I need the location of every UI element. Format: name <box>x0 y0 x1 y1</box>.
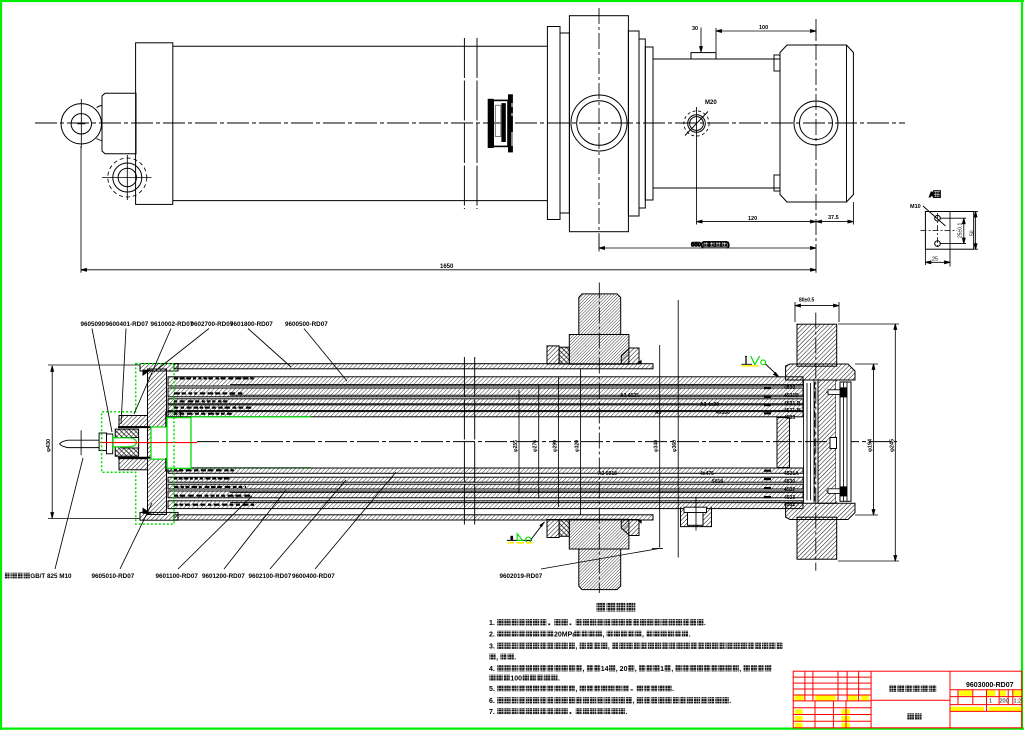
svg-text:,: , <box>583 666 585 673</box>
svg-text:4x530: 4x530 <box>716 410 730 416</box>
svg-text:φ194: φ194 <box>868 438 874 452</box>
svg-text:φ255: φ255 <box>513 440 519 452</box>
svg-text:A3: A3 <box>655 410 662 416</box>
svg-text:1650: 1650 <box>440 264 454 270</box>
svg-text:9601200-RD07: 9601200-RD07 <box>202 573 245 580</box>
svg-text:9610002-RD07: 9610002-RD07 <box>151 321 194 328</box>
svg-text:37.5: 37.5 <box>828 215 839 221</box>
svg-text:4530: 4530 <box>784 479 795 485</box>
svg-text:25: 25 <box>932 257 938 263</box>
svg-text:φ320: φ320 <box>575 440 581 452</box>
svg-text:100: 100 <box>759 25 768 31</box>
svg-text:4533: 4533 <box>784 495 795 501</box>
svg-text:.: . <box>704 620 706 627</box>
svg-text:20MPa: 20MPa <box>554 632 576 639</box>
svg-text:50: 50 <box>970 230 976 236</box>
svg-text:5018: 5018 <box>712 479 723 485</box>
svg-text:.: . <box>558 676 560 683</box>
svg-text:1:2: 1:2 <box>1014 699 1022 705</box>
svg-text:φ245: φ245 <box>889 439 895 452</box>
svg-text:25±0.1: 25±0.1 <box>958 223 964 238</box>
svg-text:, 20: , 20 <box>616 666 628 673</box>
svg-text:9600401-RD07: 9600401-RD07 <box>106 321 149 328</box>
svg-text:4x475: 4x475 <box>700 471 714 477</box>
svg-text:120: 120 <box>748 216 757 222</box>
svg-text:,: , <box>575 644 577 651</box>
svg-text:200: 200 <box>1000 699 1009 705</box>
svg-text:,: , <box>635 666 637 673</box>
svg-text:.: . <box>514 655 516 662</box>
svg-text:4531-B: 4531-B <box>784 408 801 414</box>
svg-text:3.: 3. <box>489 644 495 651</box>
svg-text:4531-D: 4531-D <box>784 401 801 407</box>
svg-text:9602019-RD07: 9602019-RD07 <box>500 573 543 580</box>
svg-text:100: 100 <box>510 676 522 683</box>
svg-text:GB/T 825 M10: GB/T 825 M10 <box>30 573 72 580</box>
svg-text:9600400-RD07: 9600400-RD07 <box>292 573 335 580</box>
svg-text:14: 14 <box>601 666 609 673</box>
svg-text:4531B: 4531B <box>784 393 799 399</box>
svg-text:,: , <box>602 632 604 639</box>
svg-text:7.: 7. <box>489 709 495 716</box>
svg-text:4532: 4532 <box>784 487 795 493</box>
svg-text:.: . <box>689 632 691 639</box>
svg-text:80±0.5: 80±0.5 <box>799 298 814 304</box>
svg-text:650(: 650( <box>691 243 703 249</box>
svg-text:,: , <box>633 698 635 705</box>
svg-text:,: , <box>671 666 673 673</box>
svg-text:9605090: 9605090 <box>81 321 106 328</box>
svg-text:1: 1 <box>660 666 664 673</box>
svg-text:4533: 4533 <box>784 415 795 421</box>
svg-text:A3 4535: A3 4535 <box>620 393 639 399</box>
svg-text:,: , <box>575 686 577 693</box>
svg-text:M20: M20 <box>705 100 717 106</box>
svg-text:9602700-RD07: 9602700-RD07 <box>191 321 234 328</box>
svg-text:M10: M10 <box>910 204 921 210</box>
svg-text:4530: 4530 <box>784 385 795 391</box>
svg-text:2.: 2. <box>489 632 495 639</box>
svg-text:5.: 5. <box>489 686 495 693</box>
svg-text:4531: 4531 <box>784 502 795 508</box>
svg-text:φ430: φ430 <box>46 439 52 452</box>
svg-text:9601100-RD07: 9601100-RD07 <box>156 573 199 580</box>
svg-text:φ360: φ360 <box>672 440 678 452</box>
svg-text:9603000-RD07: 9603000-RD07 <box>966 682 1014 689</box>
svg-text:1.: 1. <box>489 620 495 627</box>
svg-text:9602100-RD07: 9602100-RD07 <box>249 573 292 580</box>
svg-text:.: . <box>625 709 627 716</box>
svg-text:,: , <box>608 644 610 651</box>
svg-text:,: , <box>739 666 741 673</box>
svg-text:A3 5018: A3 5018 <box>598 471 617 477</box>
svg-text:9601800-RD07: 9601800-RD07 <box>230 321 273 328</box>
svg-text:4.: 4. <box>489 666 495 673</box>
svg-text:,: , <box>496 655 498 662</box>
svg-text:.: . <box>672 686 674 693</box>
svg-text:6.: 6. <box>489 698 495 705</box>
svg-text:9600500-RD07: 9600500-RD07 <box>285 321 328 328</box>
svg-text:,: , <box>642 632 644 639</box>
svg-text:4531A: 4531A <box>784 471 799 477</box>
svg-text:30: 30 <box>692 26 698 32</box>
svg-text:A3 4x30: A3 4x30 <box>700 402 719 408</box>
svg-text:9605010-RD07: 9605010-RD07 <box>92 573 135 580</box>
svg-text:): ) <box>728 243 730 249</box>
svg-text:φ276: φ276 <box>533 440 539 452</box>
svg-text:.: . <box>729 698 731 705</box>
svg-text:φ340: φ340 <box>654 440 660 452</box>
svg-text:1: 1 <box>989 699 992 705</box>
svg-text:φ299: φ299 <box>552 440 558 452</box>
